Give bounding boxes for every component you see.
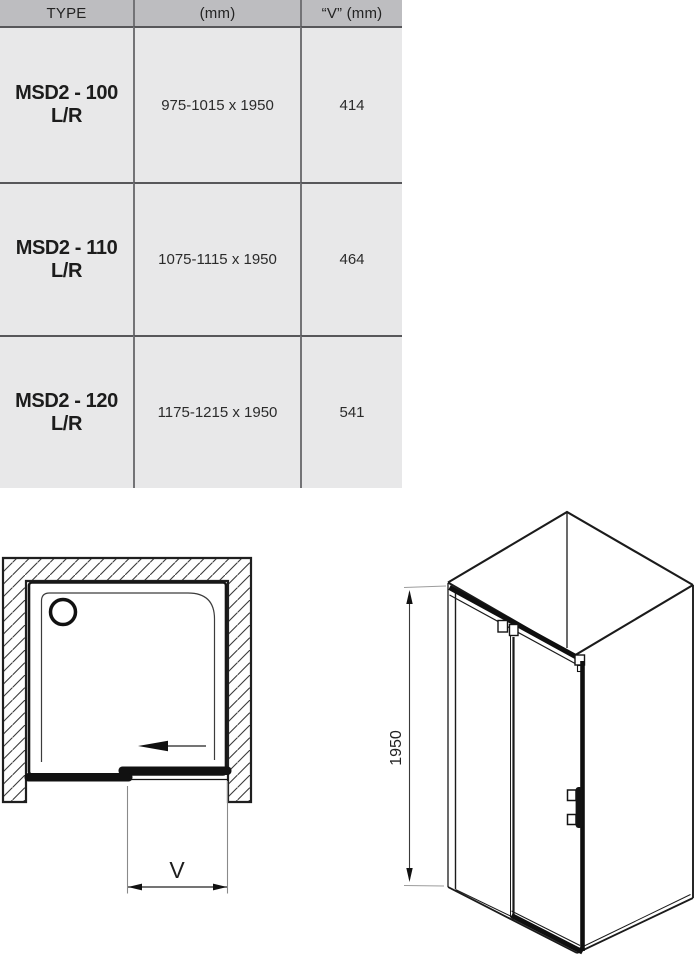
spec-sheet-page: TYPE (mm) “V” (mm) MSD2 - 100 L/R 975-10…: [0, 0, 700, 962]
dimensions-cell: 975-1015 x 1950: [133, 26, 300, 182]
fixed-panel-bar: [119, 767, 232, 776]
type-cell: MSD2 - 100 L/R: [0, 26, 133, 182]
door-handle: [568, 787, 583, 828]
col-header-type: TYPE: [0, 0, 133, 26]
door-bottom-rail: [512, 911, 583, 952]
sliding-panel-bar: [25, 773, 133, 782]
height-dimension-label: 1950: [388, 730, 405, 766]
col-header-v: “V” (mm): [300, 0, 402, 26]
height-dimension: 1950: [388, 586, 446, 886]
drain-circle: [51, 600, 76, 625]
isometric-view-diagram: 1950: [385, 505, 700, 962]
enclosure-box: [448, 512, 693, 953]
v-value-cell: 541: [300, 335, 402, 488]
v-value-cell: 414: [300, 26, 402, 182]
dimensions-cell: 1075-1115 x 1950: [133, 182, 300, 335]
dimensions-cell: 1175-1215 x 1950: [133, 335, 300, 488]
type-cell: MSD2 - 110 L/R: [0, 182, 133, 335]
roller-bracket: [498, 621, 508, 633]
v-dimension-label: V: [169, 857, 185, 883]
v-dimension: V: [128, 781, 228, 894]
type-cell: MSD2 - 120 L/R: [0, 335, 133, 488]
top-view-diagram: V: [0, 553, 262, 903]
col-header-dimensions: (mm): [133, 0, 300, 26]
roller-bracket: [510, 625, 519, 636]
door-top-rail: [450, 588, 585, 672]
spec-table: TYPE (mm) “V” (mm) MSD2 - 100 L/R 975-10…: [0, 0, 402, 488]
v-value-cell: 464: [300, 182, 402, 335]
